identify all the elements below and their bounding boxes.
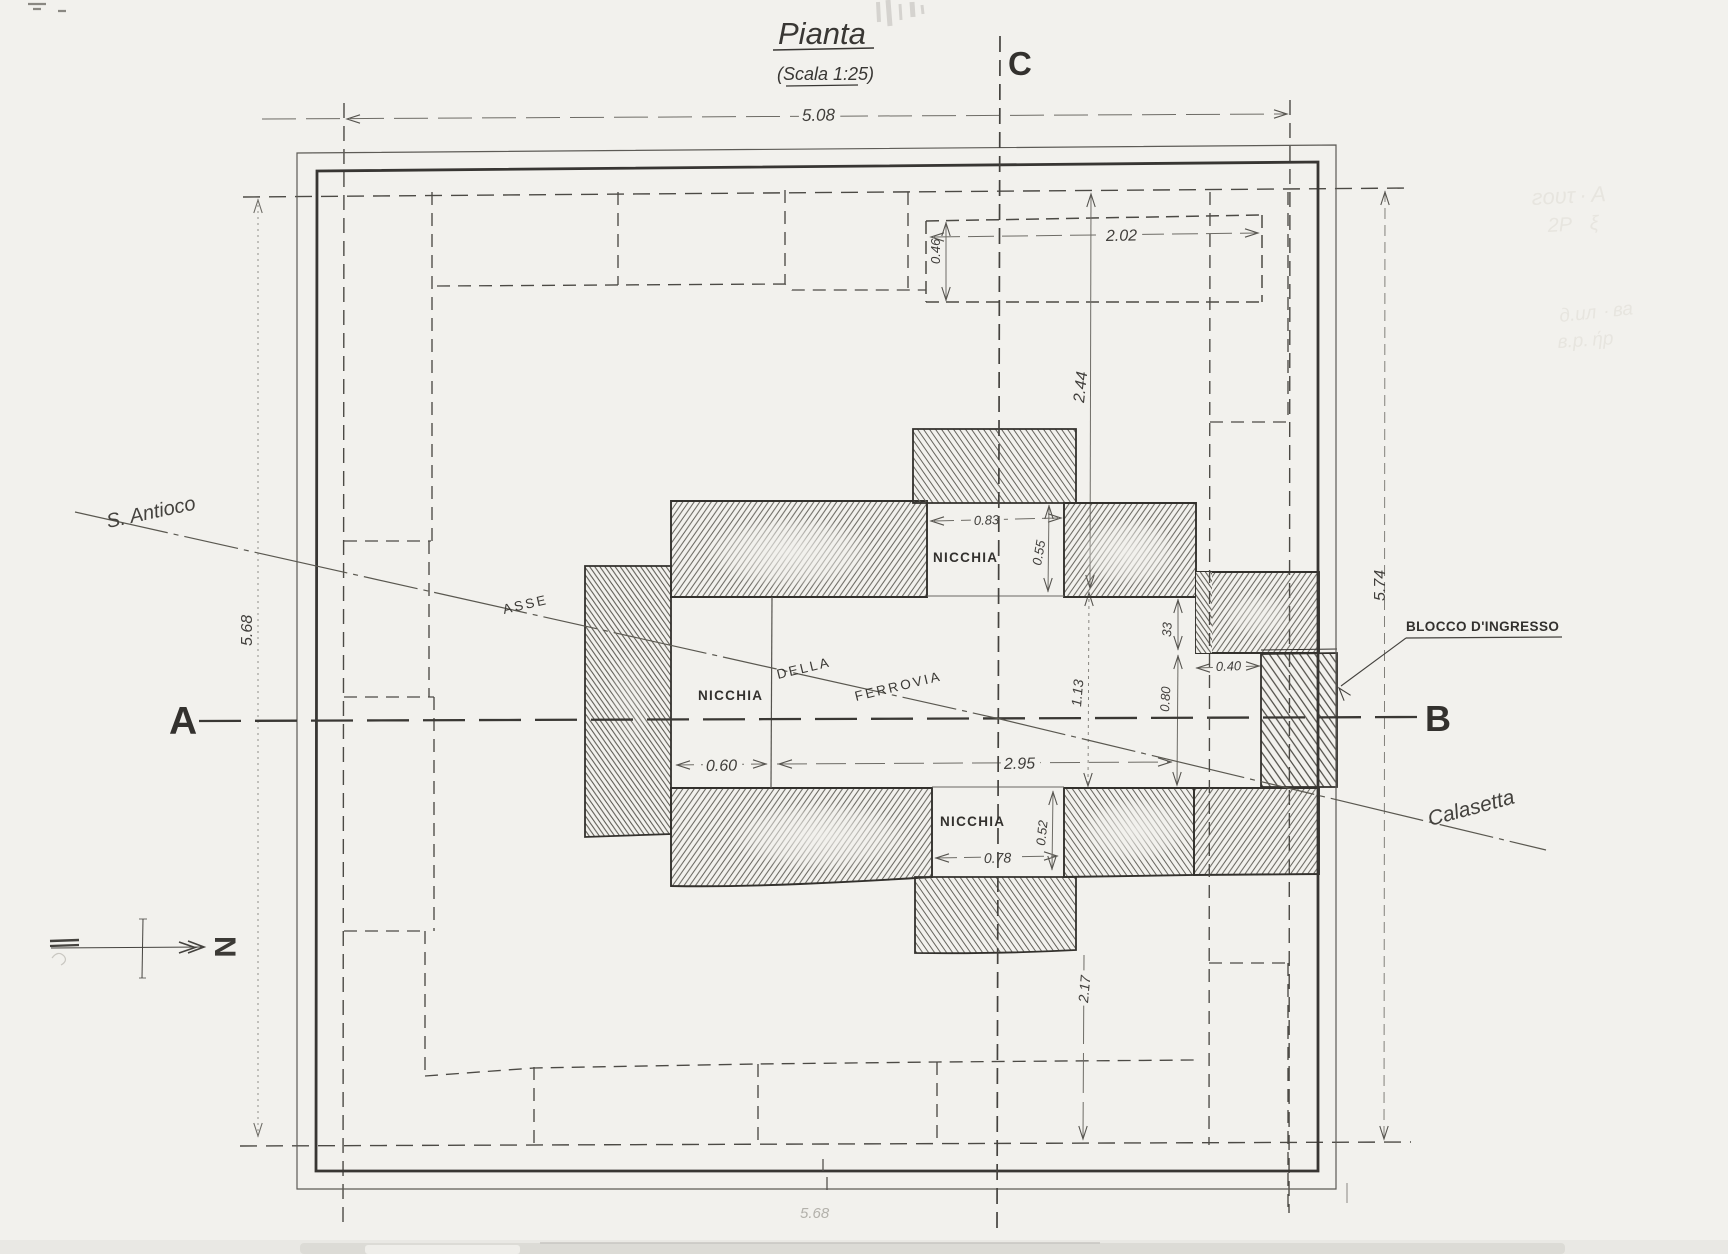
svg-text:BLOCCO D'INGRESSO: BLOCCO D'INGRESSO [1406, 619, 1559, 634]
svg-text:5.08: 5.08 [802, 105, 836, 125]
svg-text:0.83: 0.83 [974, 512, 1001, 528]
svg-text:NICCHIA: NICCHIA [698, 688, 763, 703]
svg-text:5.68: 5.68 [800, 1205, 830, 1222]
svg-text:5.74: 5.74 [1372, 570, 1389, 601]
svg-text:2.95: 2.95 [1003, 755, 1036, 773]
svg-text:C: C [1008, 45, 1032, 82]
svg-text:NICCHIA: NICCHIA [933, 550, 998, 565]
svg-text:Pianta: Pianta [778, 16, 866, 51]
svg-text:1.13: 1.13 [1068, 679, 1086, 708]
svg-text:33: 33 [1159, 621, 1175, 637]
svg-text:2.17: 2.17 [1075, 974, 1094, 1005]
svg-text:(Scala 1:25): (Scala 1:25) [777, 64, 874, 84]
svg-text:в.р. ήр: в.р. ήр [1557, 328, 1614, 353]
svg-text:0.80: 0.80 [1157, 685, 1173, 712]
svg-text:B: B [1425, 698, 1451, 739]
svg-text:2.44: 2.44 [1071, 371, 1091, 405]
svg-text:N: N [208, 936, 241, 958]
svg-text:0.40: 0.40 [1216, 658, 1243, 674]
svg-text:NICCHIA: NICCHIA [940, 814, 1005, 829]
svg-text:2.02: 2.02 [1105, 227, 1138, 245]
svg-text:5.68: 5.68 [239, 615, 256, 646]
svg-text:0.60: 0.60 [706, 757, 738, 775]
svg-text:2Ρ ξ: 2Ρ ξ [1546, 212, 1600, 237]
svg-text:0.52: 0.52 [1033, 819, 1051, 846]
svg-text:0.46: 0.46 [928, 238, 943, 264]
svg-text:A: A [169, 700, 197, 743]
svg-text:гουτ · Α: гουτ · Α [1531, 181, 1606, 210]
